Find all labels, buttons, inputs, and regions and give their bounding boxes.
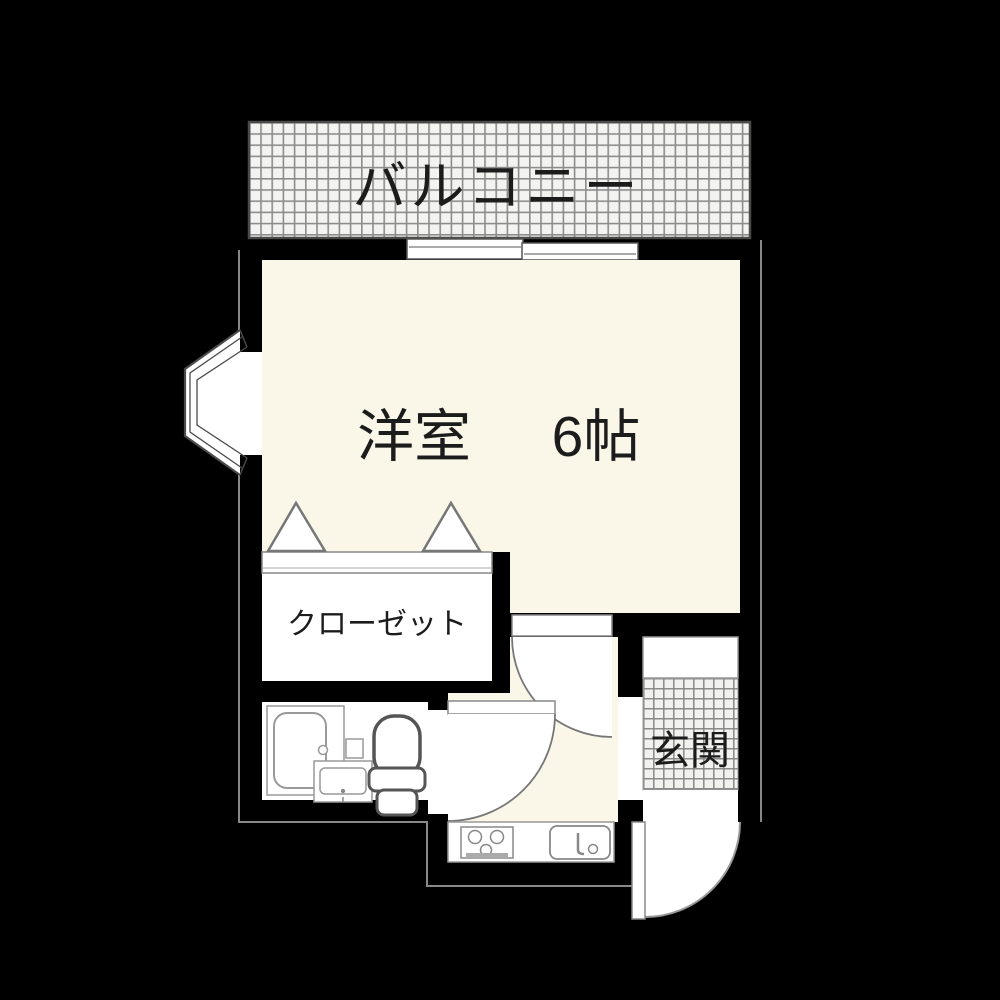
- toilet-seat: [369, 768, 425, 791]
- bathtub-handle: [319, 746, 328, 755]
- balcony-area: バルコニー: [249, 122, 750, 238]
- closet-door-track: [262, 552, 492, 573]
- entrance-step: [643, 790, 738, 822]
- floorplan-svg: バルコニー 洋室 6帖 クローゼット: [0, 0, 1000, 1000]
- entrance-door: [632, 822, 740, 919]
- stove-burner-left: [469, 831, 482, 844]
- bay-window-body: [185, 330, 240, 475]
- toilet-tank: [377, 790, 417, 815]
- closet-label: クローゼット: [287, 608, 467, 641]
- entrance-area: 玄関: [643, 637, 738, 822]
- entrance-door-swing: [645, 822, 740, 917]
- entrance-label: 玄関: [650, 729, 730, 773]
- floorplan-canvas: バルコニー 洋室 6帖 クローゼット: [0, 0, 1000, 1000]
- bay-window: [185, 330, 266, 475]
- sink-drain: [589, 845, 598, 854]
- bath-shelf: [346, 739, 363, 758]
- bathroom-area: [262, 702, 448, 815]
- shoe-cabinet: [643, 637, 738, 678]
- sliding-window-left-pane: [407, 239, 523, 259]
- washbasin-drain: [341, 789, 345, 793]
- stove-burner-right: [491, 831, 504, 844]
- balcony-label: バルコニー: [353, 157, 642, 217]
- room-door-leaf: [512, 615, 612, 636]
- kitchen-area: [448, 822, 614, 862]
- bay-window-gap: [238, 352, 266, 455]
- bathroom-door-leaf: [448, 701, 555, 714]
- entrance-step-connector: [618, 697, 643, 800]
- stove-grill-bar: [466, 853, 508, 858]
- sliding-window-right-pane: [522, 243, 638, 260]
- entrance-door-leaf: [632, 822, 645, 919]
- western-room-label: 洋室: [357, 405, 471, 469]
- western-room-size-label: 6帖: [552, 405, 641, 469]
- bathroom-doorway-gap: [428, 710, 448, 814]
